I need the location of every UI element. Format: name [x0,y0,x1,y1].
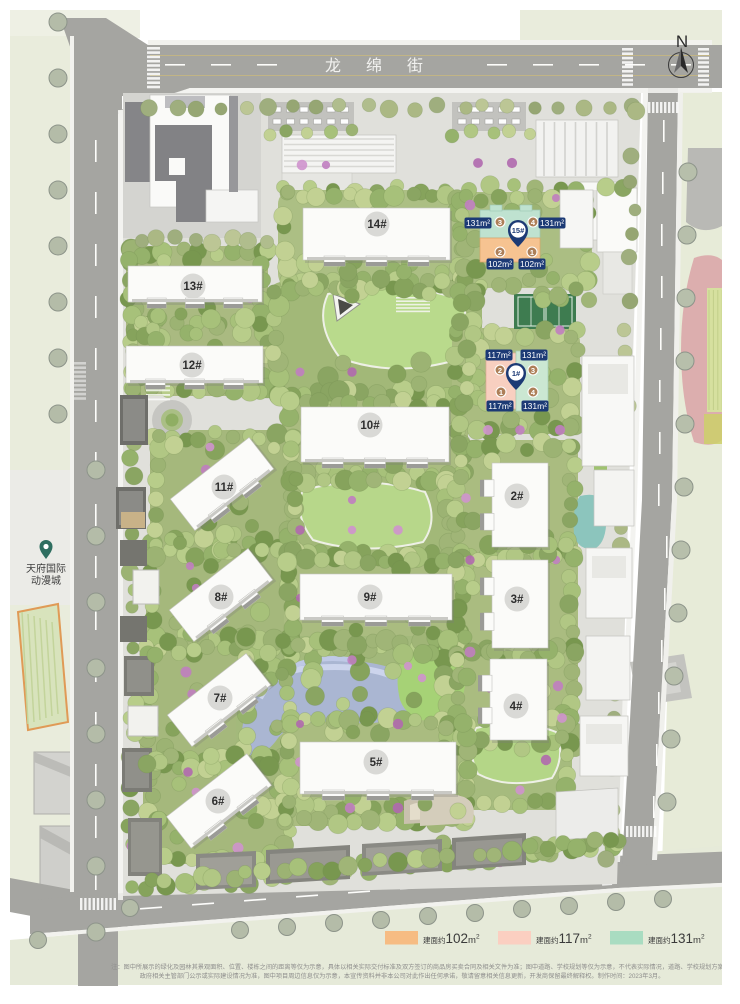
svg-text:N: N [676,32,688,51]
svg-text:6#: 6# [212,796,225,808]
svg-text:15#: 15# [512,226,525,235]
svg-text:政府相关主管部门公示或实际建设情况为准，图中项目周边信息仅为: 政府相关主管部门公示或实际建设情况为准，图中项目周边信息仅为示意，本宣传资料并非… [140,972,665,980]
svg-text:1: 1 [530,248,534,257]
svg-text:2: 2 [498,248,502,257]
svg-text:3: 3 [498,218,502,227]
svg-text:2#: 2# [511,491,524,503]
svg-text:12#: 12# [182,360,202,372]
svg-text:8#: 8# [215,592,228,604]
svg-text:注：图中所展示的绿化及园林其景观面积、位置、楼栋之间的距离等: 注：图中所展示的绿化及园林其景观面积、位置、楼栋之间的距离等仅为示意，具体以相关… [111,963,740,971]
svg-text:3#: 3# [511,594,524,606]
svg-text:5#: 5# [370,757,383,769]
svg-text:131m²: 131m² [523,401,547,411]
svg-text:13#: 13# [183,281,203,293]
svg-text:龙绵街: 龙绵街 [325,57,448,75]
svg-text:3: 3 [531,366,535,375]
svg-text:14#: 14# [367,219,387,231]
svg-text:117m²: 117m² [487,350,511,360]
svg-text:131m²: 131m² [466,218,490,228]
svg-text:2: 2 [498,366,502,375]
svg-text:天府国际: 天府国际 [26,562,66,575]
svg-text:1#: 1# [512,369,521,378]
svg-text:7#: 7# [214,693,227,705]
svg-text:1: 1 [499,388,503,397]
svg-text:102m²: 102m² [520,259,544,269]
svg-text:10#: 10# [360,420,380,432]
svg-text:117m²: 117m² [488,401,512,411]
svg-text:4#: 4# [510,701,523,713]
svg-text:动漫城: 动漫城 [31,575,61,587]
svg-text:131m²: 131m² [540,218,564,228]
svg-text:102m²: 102m² [488,259,512,269]
svg-text:9#: 9# [364,592,377,604]
svg-text:11#: 11# [215,482,234,494]
svg-text:131m²: 131m² [522,350,546,360]
